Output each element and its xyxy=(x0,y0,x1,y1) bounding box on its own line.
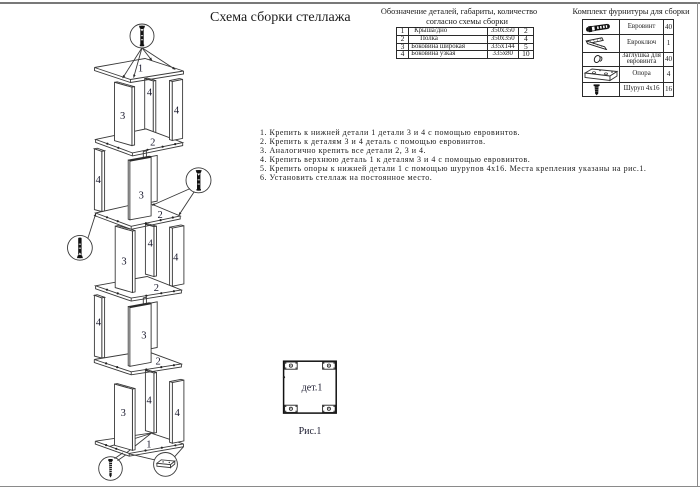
svg-text:Рис.1: Рис.1 xyxy=(299,426,322,437)
svg-text:2: 2 xyxy=(154,283,159,294)
svg-text:3: 3 xyxy=(139,190,144,201)
svg-text:3: 3 xyxy=(141,331,146,342)
svg-text:1: 1 xyxy=(138,64,143,75)
svg-text:4: 4 xyxy=(148,238,154,249)
svg-text:4: 4 xyxy=(173,253,179,264)
svg-text:3: 3 xyxy=(120,111,125,122)
svg-text:1: 1 xyxy=(146,440,151,451)
svg-text:4: 4 xyxy=(96,318,102,329)
svg-text:4: 4 xyxy=(147,88,153,99)
svg-text:4: 4 xyxy=(146,396,152,407)
svg-text:4: 4 xyxy=(174,106,180,117)
svg-text:дет.1: дет.1 xyxy=(302,383,323,394)
svg-text:2: 2 xyxy=(155,356,160,367)
svg-text:3: 3 xyxy=(121,408,126,419)
svg-text:4: 4 xyxy=(175,408,181,419)
svg-text:4: 4 xyxy=(96,175,102,186)
svg-text:2: 2 xyxy=(150,137,155,148)
svg-text:3: 3 xyxy=(121,257,126,268)
svg-text:2: 2 xyxy=(157,210,162,221)
